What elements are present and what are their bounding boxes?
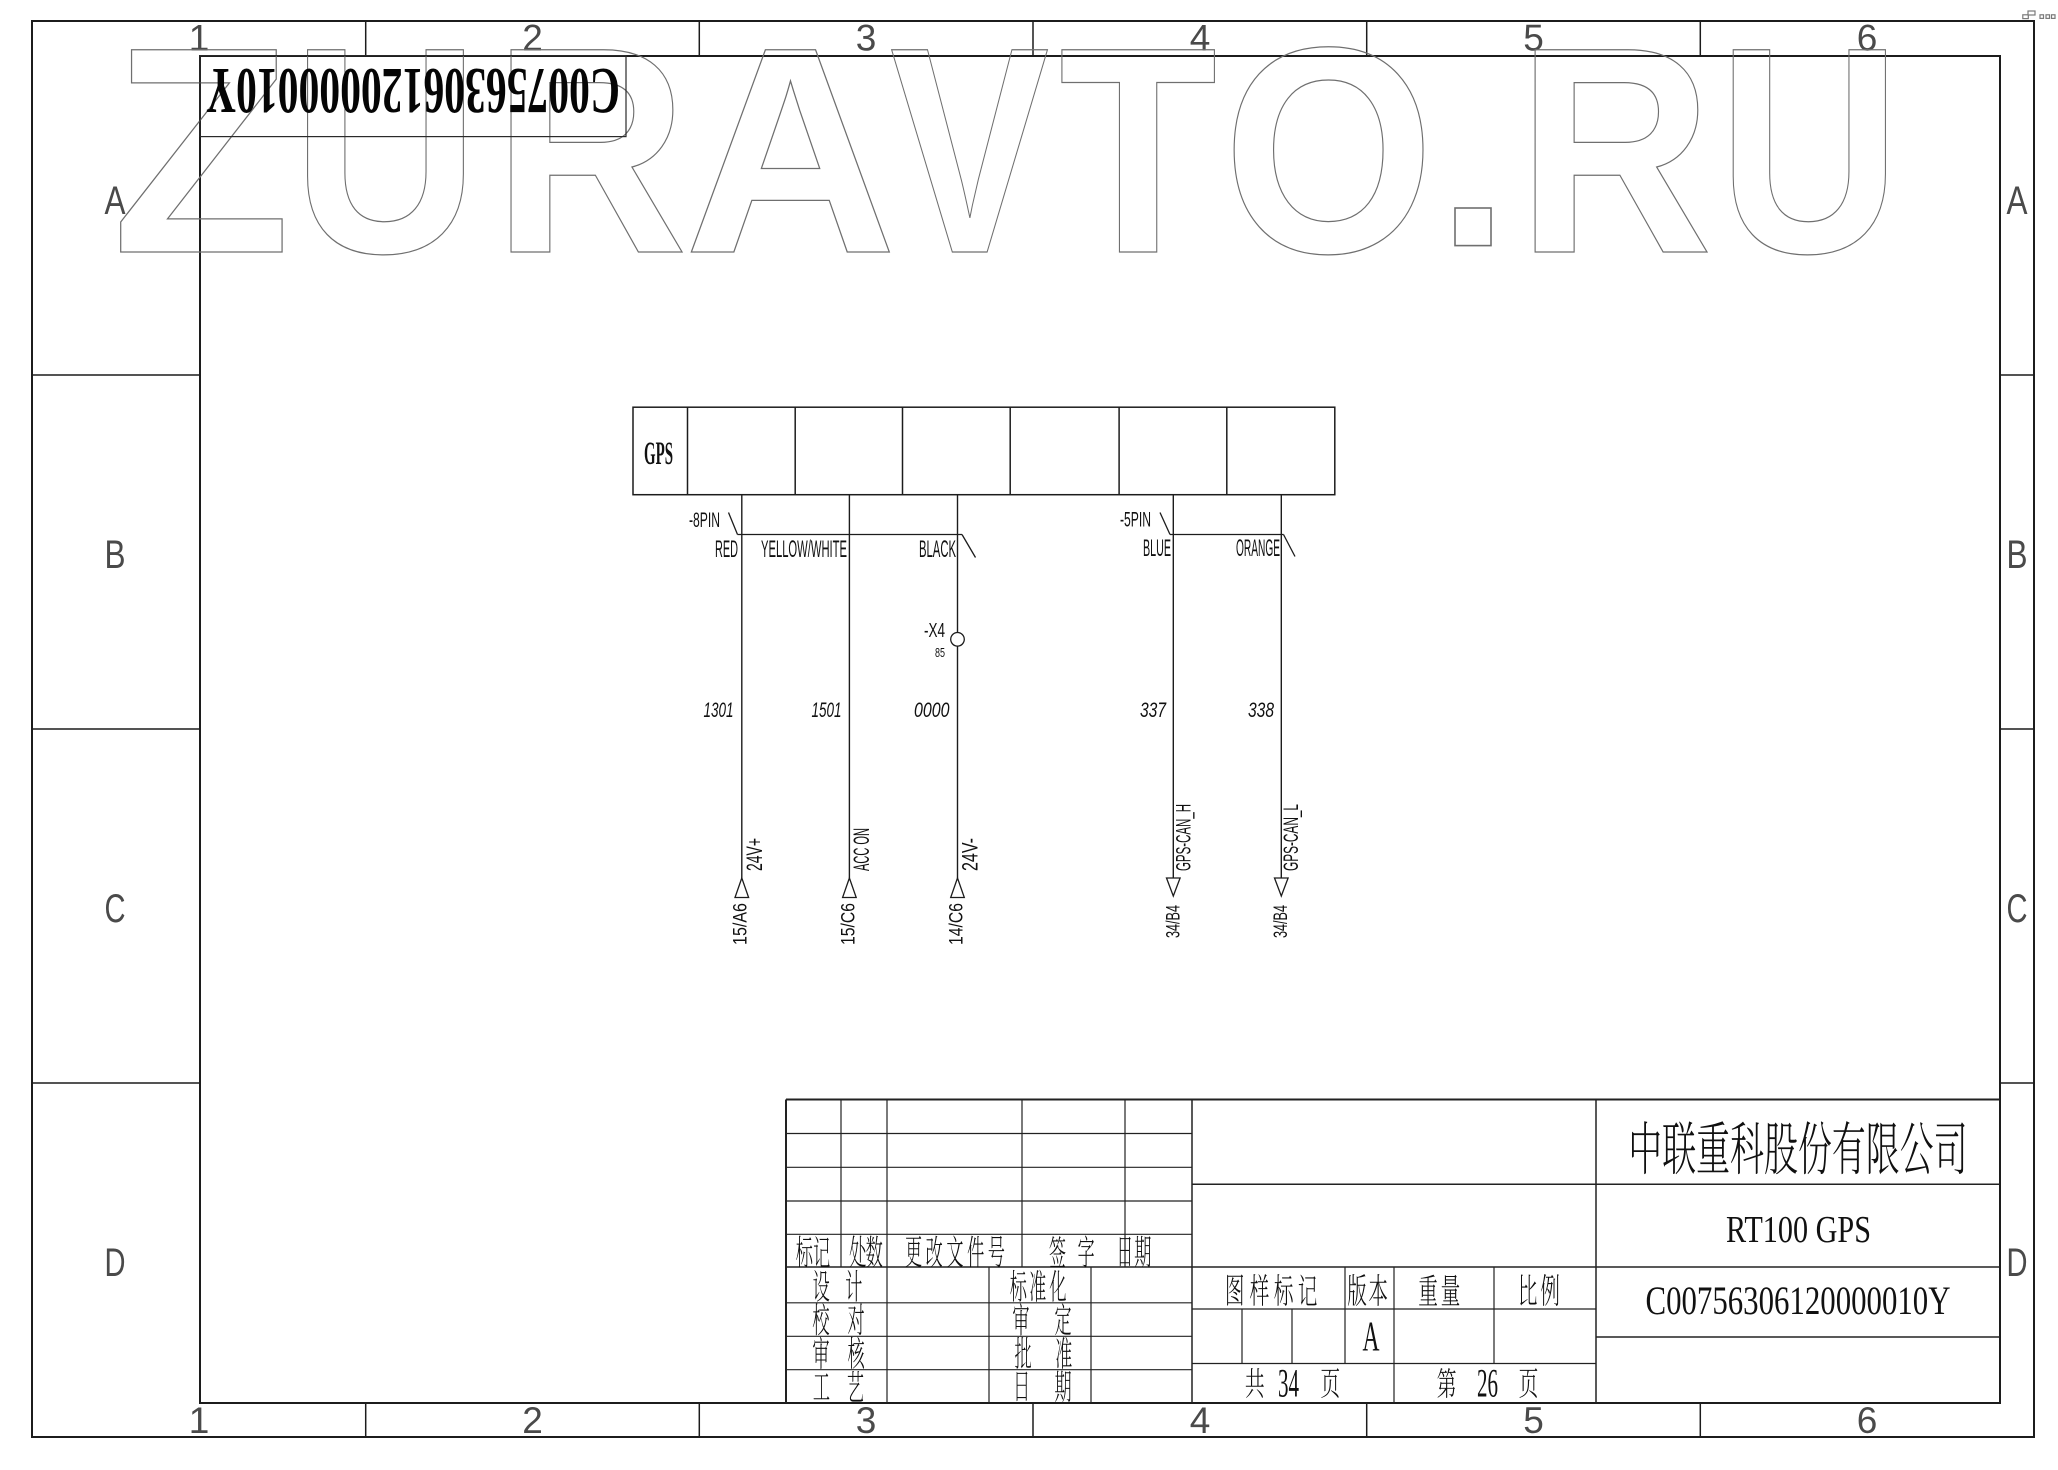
svg-text:GPS-CAN_H: GPS-CAN_H — [1173, 804, 1196, 871]
svg-text:YELLOW/WHITE: YELLOW/WHITE — [761, 536, 847, 563]
svg-text:GPS-CAN_L: GPS-CAN_L — [1280, 804, 1303, 871]
svg-text:24V-: 24V- — [958, 838, 983, 871]
svg-text:BLACK: BLACK — [919, 536, 956, 563]
svg-text:-X4: -X4 — [924, 620, 945, 642]
svg-text:15/A6: 15/A6 — [731, 903, 752, 945]
svg-text:0000: 0000 — [914, 698, 950, 722]
svg-text:U: U — [1718, 0, 1901, 315]
svg-text:34: 34 — [1278, 1361, 1299, 1406]
svg-text:337: 337 — [1140, 698, 1167, 722]
svg-text:A: A — [684, 0, 897, 315]
svg-text:34/B4: 34/B4 — [1164, 905, 1185, 938]
svg-text:B: B — [105, 533, 126, 577]
svg-text:15/C6: 15/C6 — [838, 903, 859, 945]
svg-text:B: B — [2007, 533, 2028, 577]
svg-text:1501: 1501 — [812, 698, 842, 722]
svg-text:26: 26 — [1477, 1361, 1498, 1406]
svg-text:GPS: GPS — [644, 436, 673, 472]
svg-text:85: 85 — [935, 645, 945, 660]
svg-text:Z: Z — [112, 0, 291, 315]
svg-text:C: C — [2007, 887, 2028, 931]
svg-text:1: 1 — [189, 1400, 210, 1441]
svg-text:V: V — [890, 0, 1050, 315]
svg-text:3: 3 — [856, 1400, 877, 1441]
svg-text:R: R — [493, 0, 688, 315]
svg-text:C00756306120000010Y: C00756306120000010Y — [206, 54, 620, 127]
svg-text:14/C6: 14/C6 — [946, 903, 967, 945]
svg-text:24V+: 24V+ — [742, 838, 767, 871]
svg-text:338: 338 — [1248, 698, 1274, 722]
svg-text:1301: 1301 — [704, 698, 734, 722]
svg-text:D: D — [105, 1241, 126, 1285]
svg-text:A: A — [2007, 179, 2028, 223]
svg-text:34/B4: 34/B4 — [1271, 905, 1292, 938]
svg-text:C00756306120000010Y: C00756306120000010Y — [1646, 1278, 1951, 1323]
svg-text:RT100 GPS: RT100 GPS — [1726, 1209, 1871, 1251]
svg-text:4: 4 — [1190, 1400, 1211, 1441]
svg-text:U: U — [292, 0, 479, 315]
svg-text:2: 2 — [522, 1400, 543, 1441]
svg-text:C: C — [105, 887, 126, 931]
svg-text:5: 5 — [1523, 1400, 1544, 1441]
svg-text:ACC ON: ACC ON — [849, 828, 874, 871]
svg-text:-8PIN: -8PIN — [689, 509, 720, 532]
svg-text:ORANGE: ORANGE — [1236, 535, 1280, 562]
svg-text:O: O — [1223, 0, 1434, 315]
svg-text:-5PIN: -5PIN — [1120, 509, 1151, 532]
svg-text:D: D — [2007, 1241, 2028, 1285]
svg-text:T: T — [1059, 0, 1217, 315]
svg-text:R: R — [1517, 0, 1713, 315]
svg-text:A: A — [1363, 1315, 1380, 1361]
svg-text:6: 6 — [1857, 1400, 1878, 1441]
svg-text:RED: RED — [715, 536, 738, 563]
svg-text:BLUE: BLUE — [1143, 535, 1171, 562]
